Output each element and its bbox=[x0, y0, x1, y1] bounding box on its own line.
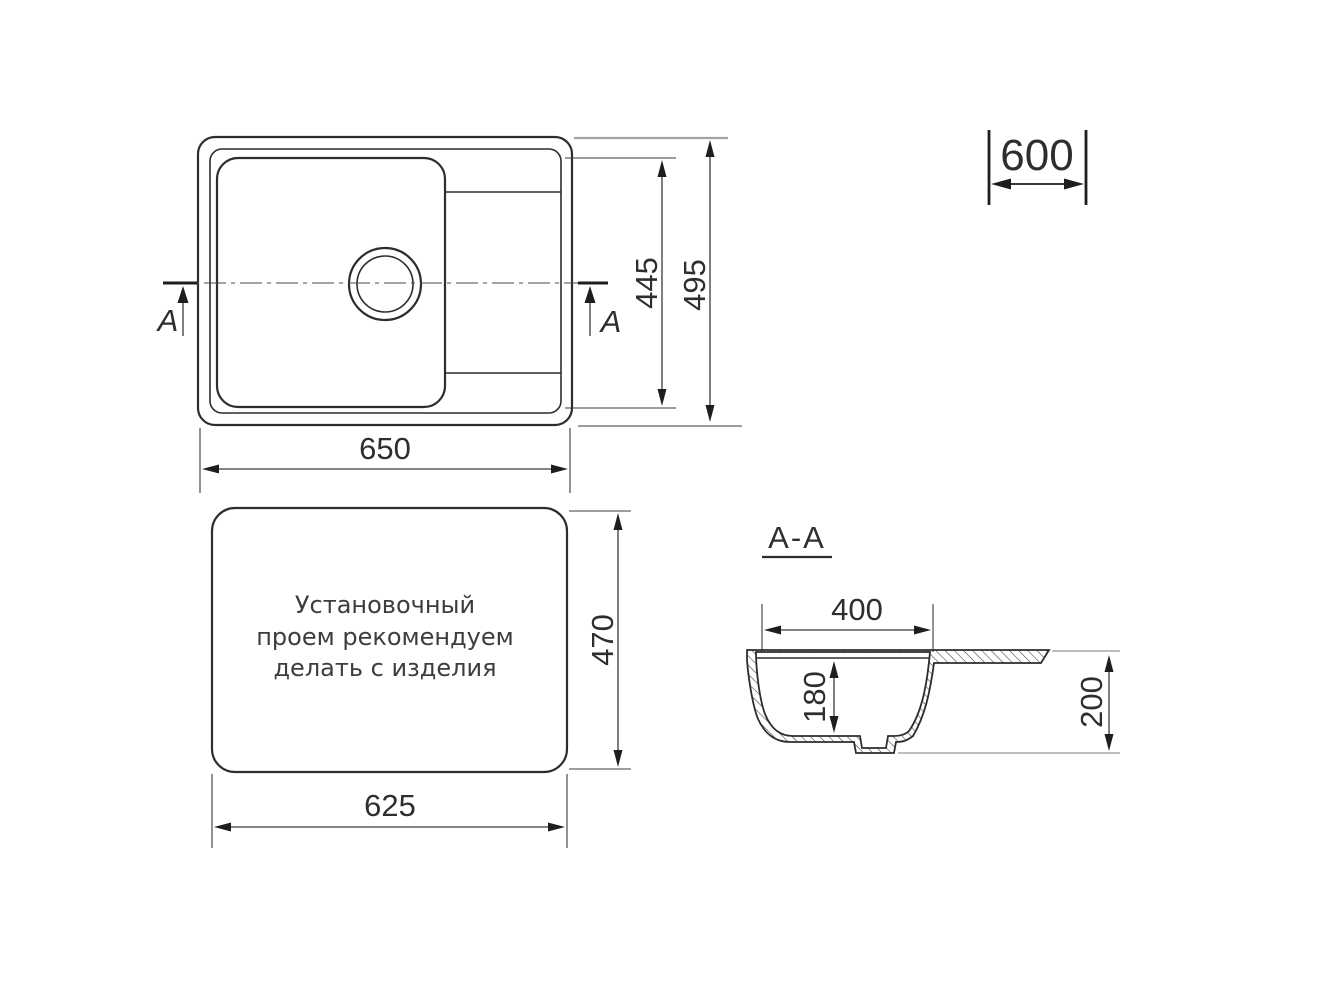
dimension-470: 470 bbox=[569, 511, 631, 769]
dimension-625: 625 bbox=[212, 774, 567, 848]
drawing-canvas: A A 650 445 bbox=[0, 0, 1330, 1000]
dim-400-label: 400 bbox=[831, 592, 883, 627]
top-view: A A 650 445 bbox=[156, 137, 742, 493]
dimension-180: 180 bbox=[797, 661, 839, 733]
section-arrow-up-icon bbox=[178, 286, 189, 303]
dimension-400: 400 bbox=[762, 592, 933, 652]
section-body bbox=[747, 650, 1049, 753]
dim-495-label: 495 bbox=[677, 259, 712, 311]
note-line-3: делать с изделия bbox=[273, 654, 496, 682]
note-line-2: проем рекомендуем bbox=[256, 623, 514, 651]
section-letter-left: A bbox=[156, 303, 179, 338]
sink-outer-edge bbox=[198, 137, 572, 425]
dim-470-label: 470 bbox=[585, 614, 620, 666]
section-cut-right: A bbox=[578, 283, 621, 339]
drain-hole-outer bbox=[349, 248, 421, 320]
dim-200-label: 200 bbox=[1074, 676, 1109, 728]
note-line-1: Установочный bbox=[295, 591, 475, 619]
dim-600-label: 600 bbox=[1000, 131, 1073, 180]
dim-650-label: 650 bbox=[359, 431, 411, 466]
dim-625-label: 625 bbox=[364, 788, 416, 823]
dimension-650: 650 bbox=[200, 428, 570, 493]
dim-445-label: 445 bbox=[629, 257, 664, 309]
drain-hole-inner bbox=[357, 256, 413, 312]
cabinet-width-dimension: 600 bbox=[989, 130, 1086, 205]
section-cut-left: A bbox=[156, 283, 197, 338]
technical-drawing-svg: A A 650 445 bbox=[0, 0, 1330, 1000]
install-cutout-view: Установочный проем рекомендуем делать с … bbox=[212, 508, 631, 848]
section-view: A-A 400 180 200 bbox=[747, 520, 1120, 753]
section-title: A-A bbox=[768, 520, 826, 555]
section-arrow-up-icon bbox=[585, 286, 596, 303]
section-letter-right: A bbox=[599, 304, 622, 339]
dim-180-label: 180 bbox=[797, 671, 832, 723]
